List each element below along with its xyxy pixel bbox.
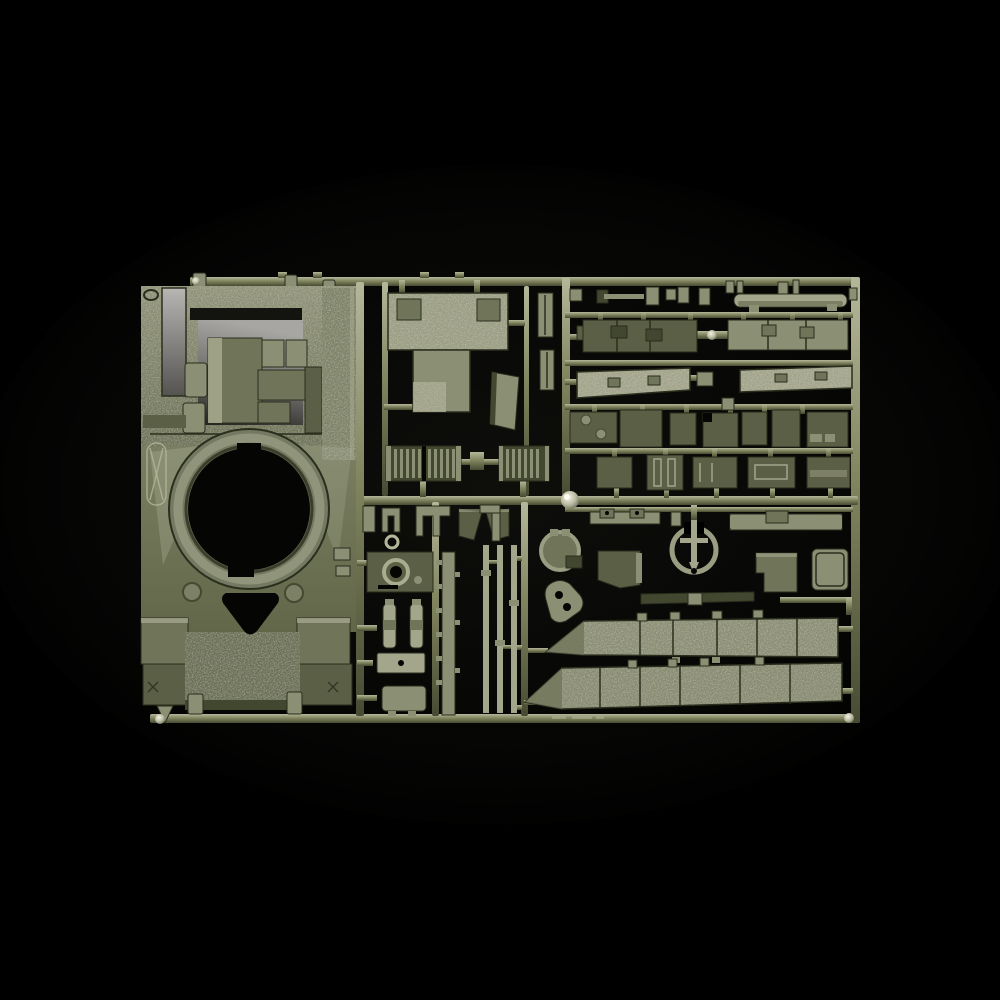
tread-plate-right bbox=[740, 366, 852, 392]
lifting-eye-left bbox=[183, 583, 201, 601]
lifting-eye-right bbox=[285, 584, 303, 602]
small-block-part bbox=[697, 372, 713, 386]
deck-panel-right bbox=[728, 320, 848, 350]
turret-ring-opening bbox=[169, 429, 329, 589]
photo-canvas bbox=[0, 0, 1000, 1000]
molded-marking bbox=[552, 716, 604, 719]
dark-box-part bbox=[598, 551, 642, 588]
radiator-grille-left bbox=[386, 446, 461, 481]
small-clamp-part bbox=[722, 398, 734, 410]
access-door-part bbox=[812, 549, 848, 590]
headlamp-housing-part bbox=[367, 552, 433, 592]
sprue-photo bbox=[0, 0, 1000, 1000]
raised-block bbox=[208, 338, 262, 423]
radiator-grille-right bbox=[499, 446, 549, 481]
upper-hull-part bbox=[141, 273, 356, 723]
deck-panel-left bbox=[577, 320, 717, 352]
left-recess-slot bbox=[162, 288, 186, 396]
beam-with-box-part bbox=[730, 511, 842, 530]
angled-plate-part bbox=[490, 372, 519, 430]
flat-bar-part bbox=[377, 653, 425, 673]
small-plate-part bbox=[382, 686, 426, 716]
